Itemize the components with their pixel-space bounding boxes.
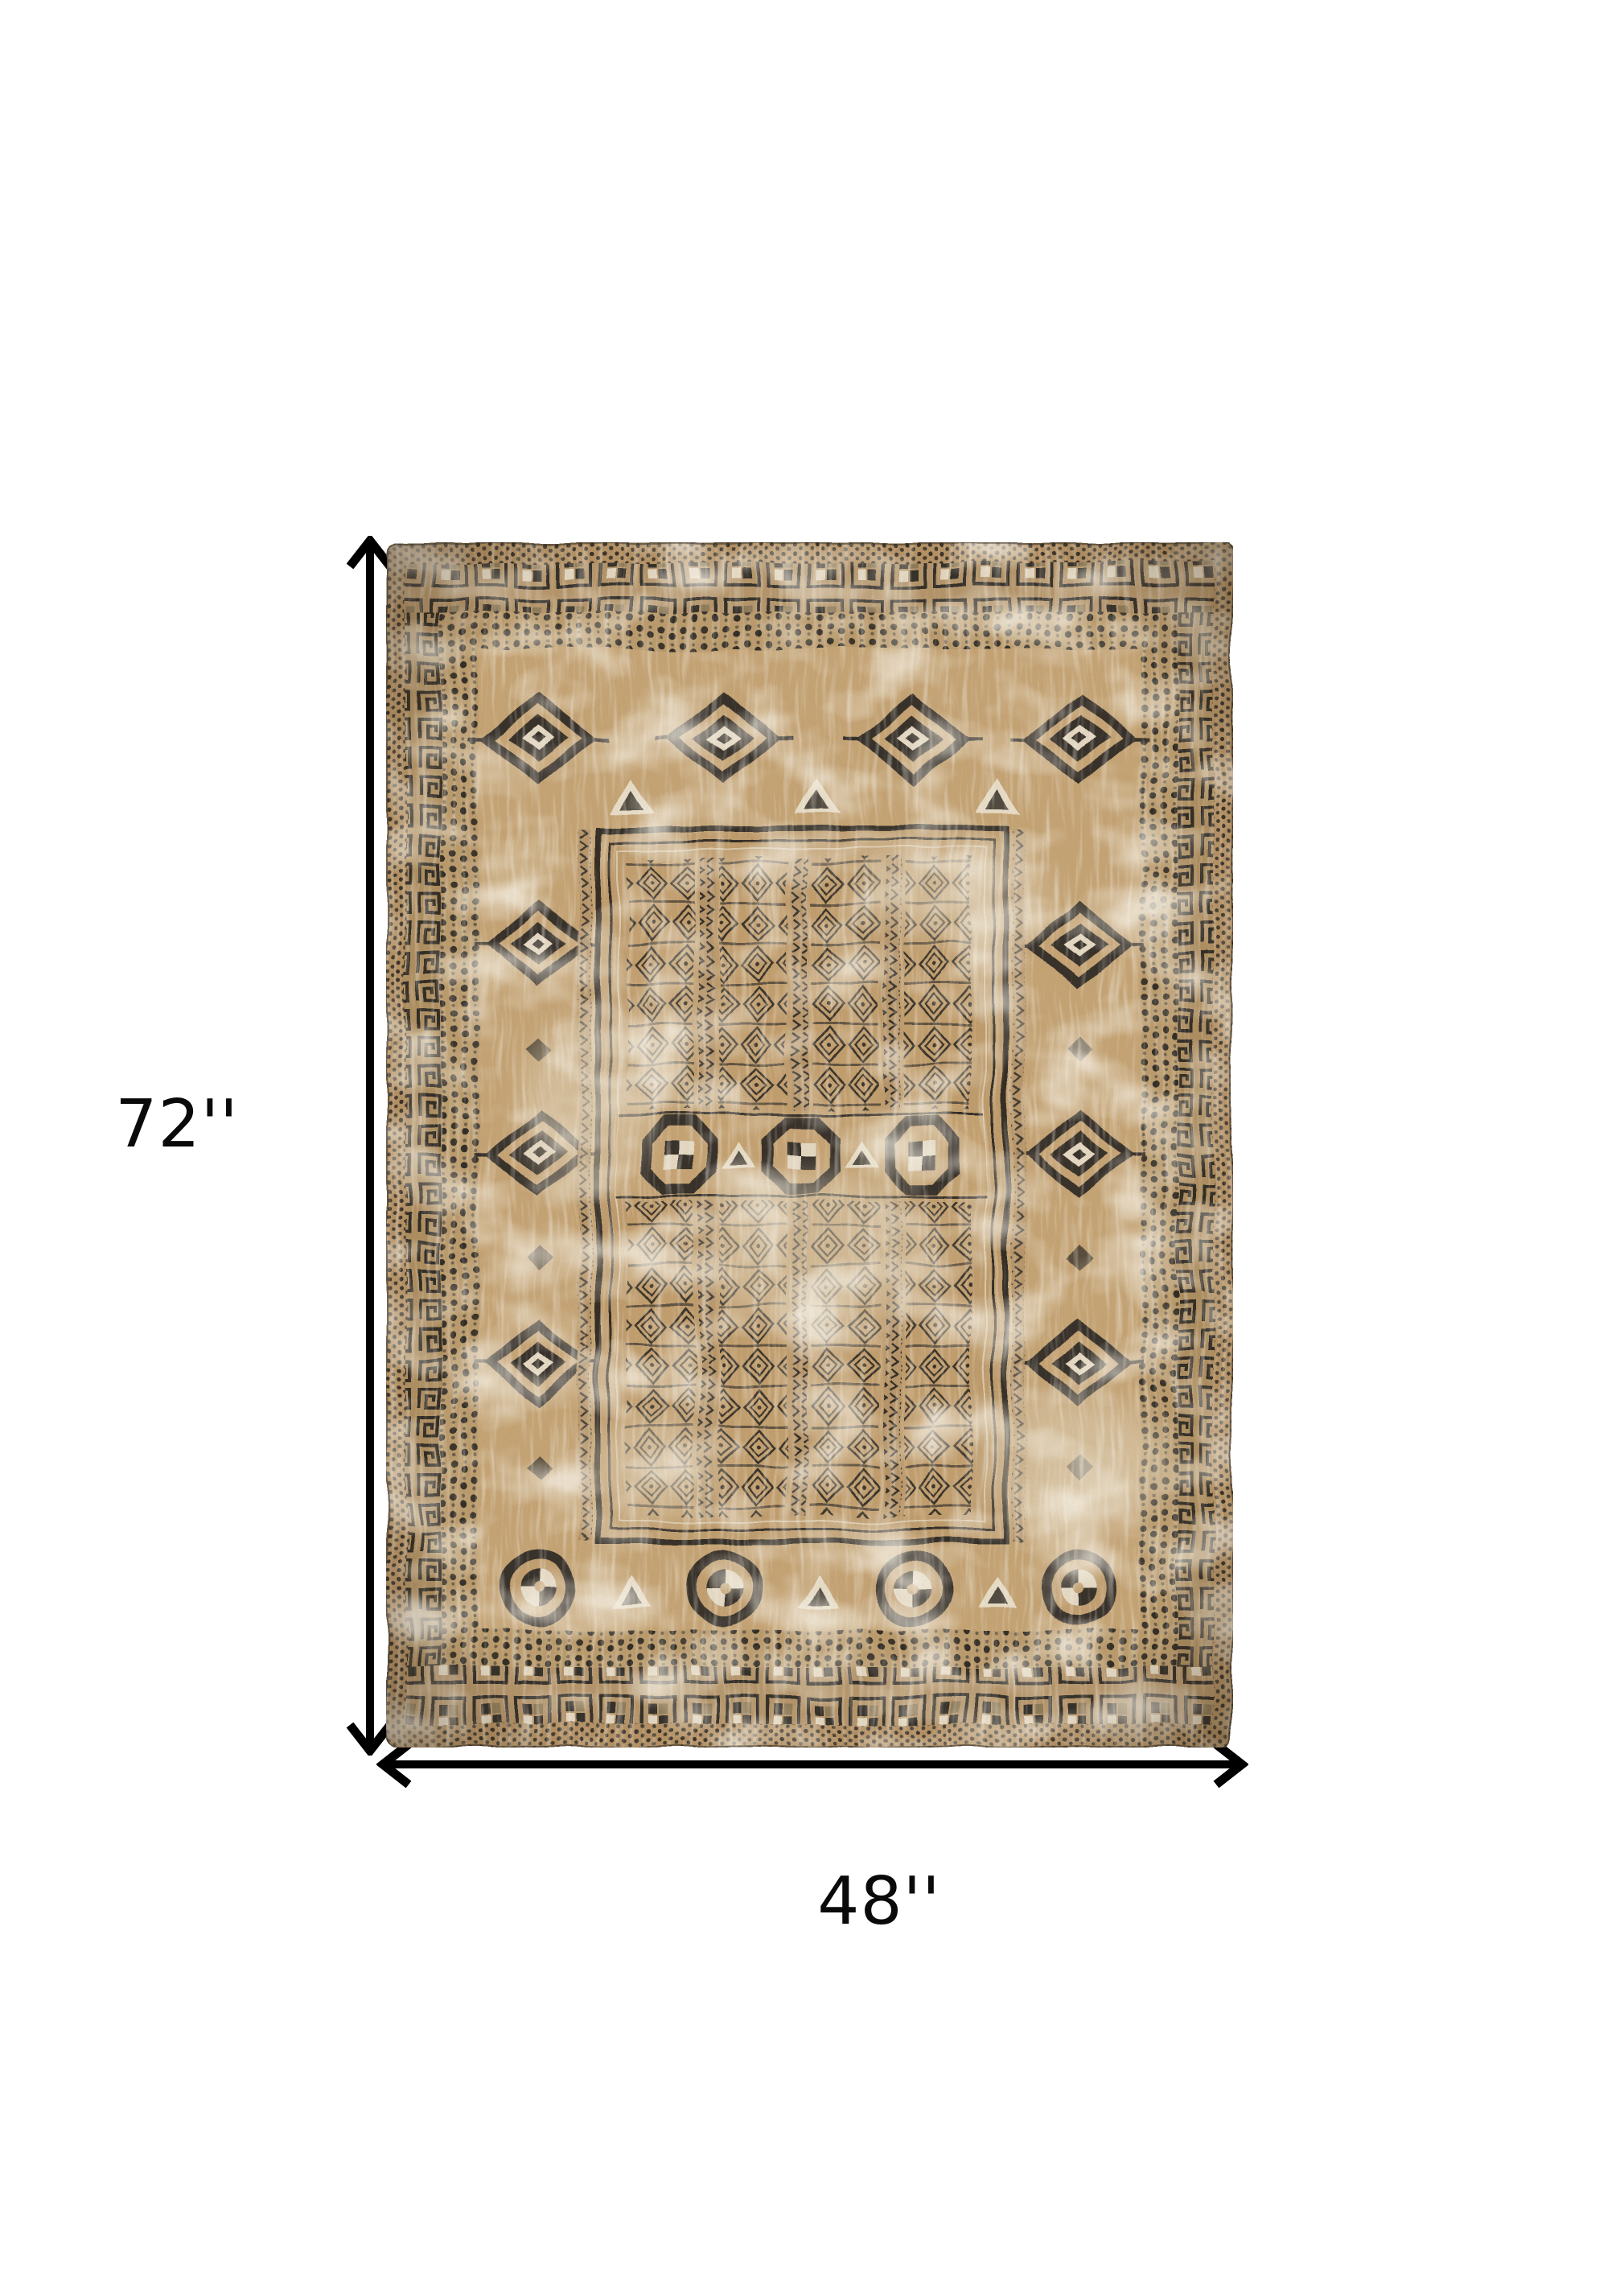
rug-distress-overlay xyxy=(386,542,1233,1748)
rug-image xyxy=(386,542,1233,1748)
rug-graphic xyxy=(386,542,1233,1748)
page-canvas: 72'' 48'' xyxy=(0,0,1624,2293)
width-dimension-label: 48'' xyxy=(791,1857,968,1947)
height-dimension-label: 72'' xyxy=(88,1080,265,1170)
